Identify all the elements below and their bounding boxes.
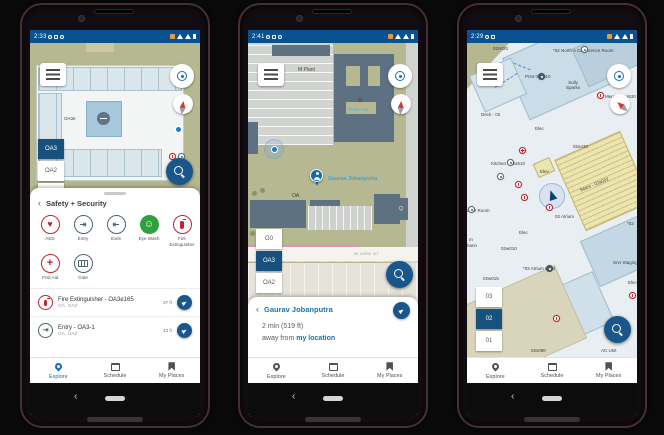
- directions-fab[interactable]: [177, 323, 192, 338]
- calendar-icon: [111, 363, 120, 371]
- building-m: [334, 54, 394, 142]
- tree: [250, 231, 255, 236]
- search-icon: [174, 166, 185, 177]
- map-terrain-patch: [86, 43, 114, 52]
- sheet-handle[interactable]: [104, 192, 126, 195]
- alarm-icon: [266, 35, 270, 39]
- fire-extinguisher-map-icon[interactable]: [521, 194, 528, 201]
- directions-fab[interactable]: [393, 302, 410, 319]
- floor-chip-label: 03: [486, 294, 493, 300]
- search-fab[interactable]: [166, 158, 193, 185]
- elevator-room: [533, 157, 556, 178]
- fire-extinguisher-map-icon[interactable]: [597, 92, 604, 99]
- compass-needle-icon: [615, 99, 624, 108]
- android-back-icon[interactable]: ‹: [511, 392, 514, 402]
- category-label: Entry: [78, 236, 89, 242]
- wifi-icon: [395, 34, 401, 39]
- floor-chip-03[interactable]: 03: [476, 287, 502, 307]
- floor-chip-g0[interactable]: G0: [256, 229, 282, 249]
- nav-label: Schedule: [104, 373, 127, 379]
- hamburger-icon: [46, 69, 60, 80]
- search-icon: [612, 324, 623, 335]
- aed-icon: ♥: [41, 215, 60, 234]
- battery-icon: [411, 34, 415, 40]
- floor-chip-label: G0: [265, 236, 273, 242]
- android-back-icon[interactable]: ‹: [74, 392, 77, 402]
- map-label: *02: [627, 221, 634, 226]
- nav-label: Schedule: [322, 373, 345, 379]
- clock-text: 2:41: [252, 34, 264, 40]
- hamburger-icon: [264, 69, 278, 80]
- floor-chip-label: OA2: [263, 280, 275, 286]
- map-label: Elec: [519, 230, 528, 235]
- explore-pin-icon: [53, 362, 63, 372]
- compass-button[interactable]: [610, 94, 630, 114]
- category-label: Eye Wash: [139, 236, 160, 242]
- floor-chip-label: 01: [486, 338, 493, 344]
- category-fire-extinguisher[interactable]: Fire Extinguisher: [166, 215, 198, 247]
- hamburger-icon: [483, 69, 497, 80]
- map-label: 02 Atrium: [555, 214, 574, 219]
- map-label: OA: [292, 193, 299, 199]
- menu-button[interactable]: [258, 63, 284, 86]
- building: [248, 122, 258, 154]
- courtyard: [346, 66, 360, 86]
- menu-button[interactable]: [477, 63, 503, 86]
- status-bar: 2:41: [248, 30, 418, 43]
- map-label: Q: [399, 206, 403, 212]
- alarm-icon: [485, 35, 489, 39]
- sheet-title: Safety + Security: [46, 199, 107, 208]
- phone-2-screen: 2:41 M Plant: [248, 30, 418, 415]
- map-label-room: OA3e: [64, 116, 76, 121]
- search-icon: [394, 269, 405, 280]
- category-label: Exits: [111, 236, 121, 242]
- category-entry[interactable]: ⇥ Entry: [67, 215, 99, 242]
- elevator-icon: [97, 112, 110, 125]
- front-camera: [296, 15, 303, 22]
- street-label: W 43RD ST: [354, 251, 379, 256]
- battery-icon: [630, 34, 634, 40]
- notification-icon: [491, 35, 495, 39]
- eta-text: 2 min (519 ft): [262, 323, 303, 330]
- route-info-sheet[interactable]: ‹ Gaurav Jobanputra 2 min (519 ft) away …: [248, 297, 418, 357]
- person-label: Gaurav Jobanputra: [328, 176, 377, 182]
- floor-chip-label: OA3: [45, 146, 57, 152]
- result-location: OA, OA3: [58, 332, 158, 337]
- parking-lot: [248, 43, 333, 145]
- map-label: Elec: [628, 280, 637, 285]
- search-fab[interactable]: [386, 261, 413, 288]
- parking-structure: [308, 206, 372, 230]
- category-label: AED: [45, 236, 54, 242]
- nav-label: Explore: [267, 374, 286, 380]
- conference-map-icon[interactable]: [581, 46, 588, 53]
- atrium-west-map-icon[interactable]: [546, 265, 553, 272]
- fire-extinguisher-map-icon[interactable]: [546, 204, 553, 211]
- building: [272, 45, 330, 56]
- locate-icon: [395, 71, 405, 81]
- result-row-fire-extinguisher[interactable]: Fire Extinguisher - OA3e165 OA, OA3 37 f…: [30, 288, 200, 316]
- earpiece-speaker: [312, 9, 352, 14]
- map-label: Elev: [540, 169, 549, 174]
- nav-label: My Places: [596, 373, 621, 379]
- fire-extinguisher-map-icon[interactable]: [515, 181, 522, 188]
- sheet-title: Gaurav Jobanputra: [264, 305, 333, 314]
- nav-label: My Places: [377, 373, 402, 379]
- map-label: Elec: [535, 126, 544, 131]
- phone-3: 2:29 02n020 *02 North A Conference Room …: [457, 3, 647, 428]
- floor-chip-label: 02: [486, 316, 493, 322]
- earpiece-speaker: [94, 9, 134, 14]
- menu-button[interactable]: [40, 63, 66, 86]
- map-label: M: [358, 98, 362, 104]
- eye-wash-icon: ☺: [140, 215, 159, 234]
- floor-chip-label: OA3: [263, 258, 275, 264]
- person-pin[interactable]: [310, 169, 323, 186]
- clock-text: 2:33: [34, 34, 46, 40]
- print-map-icon[interactable]: [538, 73, 545, 80]
- android-home-pill[interactable]: [323, 396, 343, 401]
- result-title: Fire Extinguisher - OA3e165: [58, 297, 158, 303]
- my-location-dot: [175, 126, 182, 133]
- map-label: 02w015: [483, 276, 499, 281]
- bookmark-icon: [168, 362, 175, 371]
- category-label: Fire Extinguisher: [166, 236, 198, 247]
- locate-icon: [614, 71, 624, 81]
- my-location-link[interactable]: my location: [296, 335, 335, 342]
- screenshot-icon: [388, 34, 393, 39]
- bottom-speaker: [87, 417, 143, 422]
- result-distance: 43 ft: [163, 328, 172, 333]
- phone-1-screen: 2:33 OA3e OA3 OA2: [30, 30, 200, 415]
- category-gate[interactable]: Gate: [67, 254, 99, 281]
- category-first-aid[interactable]: + First Aid: [34, 254, 66, 281]
- directions-fab[interactable]: [177, 295, 192, 310]
- screenshot-icon: [170, 34, 175, 39]
- nav-item-schedule[interactable]: Schedule: [305, 358, 362, 383]
- person-pin-icon: [310, 169, 323, 182]
- nav-label: My Places: [159, 373, 184, 379]
- nav-item-my-places[interactable]: My Places: [361, 358, 418, 383]
- safety-security-sheet[interactable]: ‹ Safety + Security ♥ AED ⇥ Entry ⇤ Exit…: [30, 188, 200, 357]
- map-label: 02a430: [573, 144, 588, 149]
- status-bar: 2:33: [30, 30, 200, 43]
- wifi-icon: [177, 34, 183, 39]
- result-row-entry[interactable]: ⇥ Entry - OA3-1 OA, OA3 43 ft: [30, 316, 200, 344]
- nav-item-my-places[interactable]: My Places: [143, 358, 200, 383]
- map-label: 02n020: [493, 46, 508, 51]
- map-label: 02s080: [531, 348, 546, 353]
- signal-icon: [403, 34, 409, 39]
- map-label: M Plant: [298, 67, 315, 73]
- nav-label: Schedule: [541, 373, 564, 379]
- nav-item-my-places[interactable]: My Places: [580, 358, 637, 383]
- map-label: Deck - 02: [481, 112, 500, 117]
- earpiece-speaker: [531, 9, 571, 14]
- category-exits[interactable]: ⇤ Exits: [100, 215, 132, 242]
- nav-item-schedule[interactable]: Schedule: [524, 358, 581, 383]
- android-home-pill[interactable]: [542, 396, 562, 401]
- app-notification-icon: [60, 35, 64, 39]
- floor-chip-02[interactable]: 02: [476, 309, 502, 329]
- result-distance: 37 ft: [163, 300, 172, 305]
- signal-icon: [622, 34, 628, 39]
- nav-item-explore[interactable]: Explore: [30, 358, 87, 383]
- fire-extinguisher-map-icon[interactable]: [553, 315, 560, 322]
- floor-chip-oa3[interactable]: OA3: [38, 139, 64, 159]
- conference-map-icon[interactable]: [468, 206, 475, 213]
- front-camera: [78, 15, 85, 22]
- floor-chip-label: OA2: [45, 168, 57, 174]
- nav-label: Explore: [486, 374, 505, 380]
- locate-me-button[interactable]: [170, 64, 194, 88]
- notification-icon: [54, 35, 58, 39]
- result-location: OA, OA3: [58, 304, 158, 309]
- map-label: hann: [467, 243, 477, 248]
- locate-icon: [177, 71, 187, 81]
- map-label: m: [469, 237, 473, 242]
- fire-extinguisher-map-icon[interactable]: [629, 292, 636, 299]
- bottom-speaker: [305, 417, 361, 422]
- clock-text: 2:29: [471, 34, 483, 40]
- nav-item-explore[interactable]: Explore: [467, 358, 524, 383]
- nav-label: Explore: [49, 374, 68, 380]
- kitchen-map-icon[interactable]: [507, 159, 514, 166]
- sheet-header: ‹ Gaurav Jobanputra: [256, 305, 388, 314]
- explore-pin-icon: [490, 362, 500, 372]
- sheet-header: ‹ Safety + Security: [38, 199, 107, 208]
- android-home-pill[interactable]: [105, 396, 125, 401]
- fire-extinguisher-icon: [173, 215, 192, 234]
- entry-icon: ⇥: [38, 323, 53, 338]
- floor-chip-01[interactable]: 01: [476, 331, 502, 351]
- android-back-icon[interactable]: ‹: [292, 392, 295, 402]
- floor-chip-oa2[interactable]: OA2: [38, 161, 64, 181]
- screenshot-icon: [607, 34, 612, 39]
- android-nav-bar: ‹: [30, 383, 200, 415]
- android-nav-bar: ‹: [467, 383, 637, 415]
- nav-item-explore[interactable]: Explore: [248, 358, 305, 383]
- category-label: Gate: [78, 275, 88, 281]
- map-label: AC Unit: [601, 348, 617, 353]
- locate-me-button[interactable]: [388, 64, 412, 88]
- explore-pin-icon: [271, 362, 281, 372]
- gate-icon: [74, 254, 93, 273]
- directions-arrow-icon: [398, 307, 404, 313]
- app-notification-icon: [278, 35, 282, 39]
- alarm-icon: [48, 35, 52, 39]
- away-prefix: away from: [262, 335, 294, 342]
- map-label: 02w010: [501, 246, 517, 251]
- bottom-speaker: [524, 417, 580, 422]
- search-fab[interactable]: [604, 316, 631, 343]
- wifi-icon: [614, 34, 620, 39]
- tree: [252, 191, 257, 196]
- bottom-nav: Explore Schedule My Places: [467, 357, 637, 383]
- bottom-nav: Explore Schedule My Places: [30, 357, 200, 383]
- building-oa: [250, 200, 306, 228]
- category-eye-wash[interactable]: ☺ Eye Wash: [133, 215, 165, 242]
- category-aed[interactable]: ♥ AED: [34, 215, 66, 242]
- compass-needle-icon: [398, 100, 404, 107]
- park-label: Tuttle Par: [348, 108, 369, 113]
- directions-arrow-icon: [181, 299, 187, 305]
- nav-item-schedule[interactable]: Schedule: [87, 358, 144, 383]
- locate-me-button[interactable]: [607, 64, 631, 88]
- gate-map-icon[interactable]: [497, 173, 504, 180]
- entry-icon: ⇥: [74, 215, 93, 234]
- fire-extinguisher-icon: [38, 295, 53, 310]
- map-label: Srvr Staging: [613, 260, 637, 265]
- phone-3-screen: 2:29 02n020 *02 North A Conference Room …: [467, 30, 637, 415]
- calendar-icon: [548, 363, 557, 371]
- notification-icon: [272, 35, 276, 39]
- compass-button[interactable]: [391, 94, 411, 114]
- floor-chip-oa3[interactable]: OA3: [256, 251, 282, 271]
- front-camera: [515, 15, 522, 22]
- status-bar: 2:29: [467, 30, 637, 43]
- exits-icon: ⇤: [107, 215, 126, 234]
- battery-icon: [193, 34, 197, 40]
- courtyard: [368, 66, 380, 86]
- back-chevron-icon[interactable]: ‹: [38, 199, 41, 208]
- map-label: Sully Sparks: [561, 80, 585, 90]
- signal-icon: [185, 34, 191, 39]
- floor-chip-oa2[interactable]: OA2: [256, 273, 282, 293]
- android-nav-bar: ‹: [248, 383, 418, 415]
- my-location-dot: [271, 146, 278, 153]
- away-line: away from my location: [262, 335, 335, 342]
- calendar-icon: [329, 363, 338, 371]
- tree: [260, 188, 265, 193]
- category-label: First Aid: [42, 275, 59, 281]
- result-title: Entry - OA3-1: [58, 325, 158, 331]
- first-aid-icon: +: [41, 254, 60, 273]
- bookmark-icon: [386, 362, 393, 371]
- phone-1: 2:33 OA3e OA3 OA2: [20, 3, 210, 428]
- first-aid-map-icon[interactable]: [519, 147, 526, 154]
- floorplan-map[interactable]: 02n020 *02 North A Conference Room Print…: [467, 43, 637, 357]
- bookmark-icon: [605, 362, 612, 371]
- directions-arrow-icon: [181, 327, 187, 333]
- back-chevron-icon[interactable]: ‹: [256, 305, 259, 314]
- phone-2: 2:41 M Plant: [238, 3, 428, 428]
- compass-button[interactable]: [173, 94, 193, 114]
- compass-needle-icon: [180, 100, 187, 108]
- bottom-nav: Explore Schedule My Places: [248, 357, 418, 383]
